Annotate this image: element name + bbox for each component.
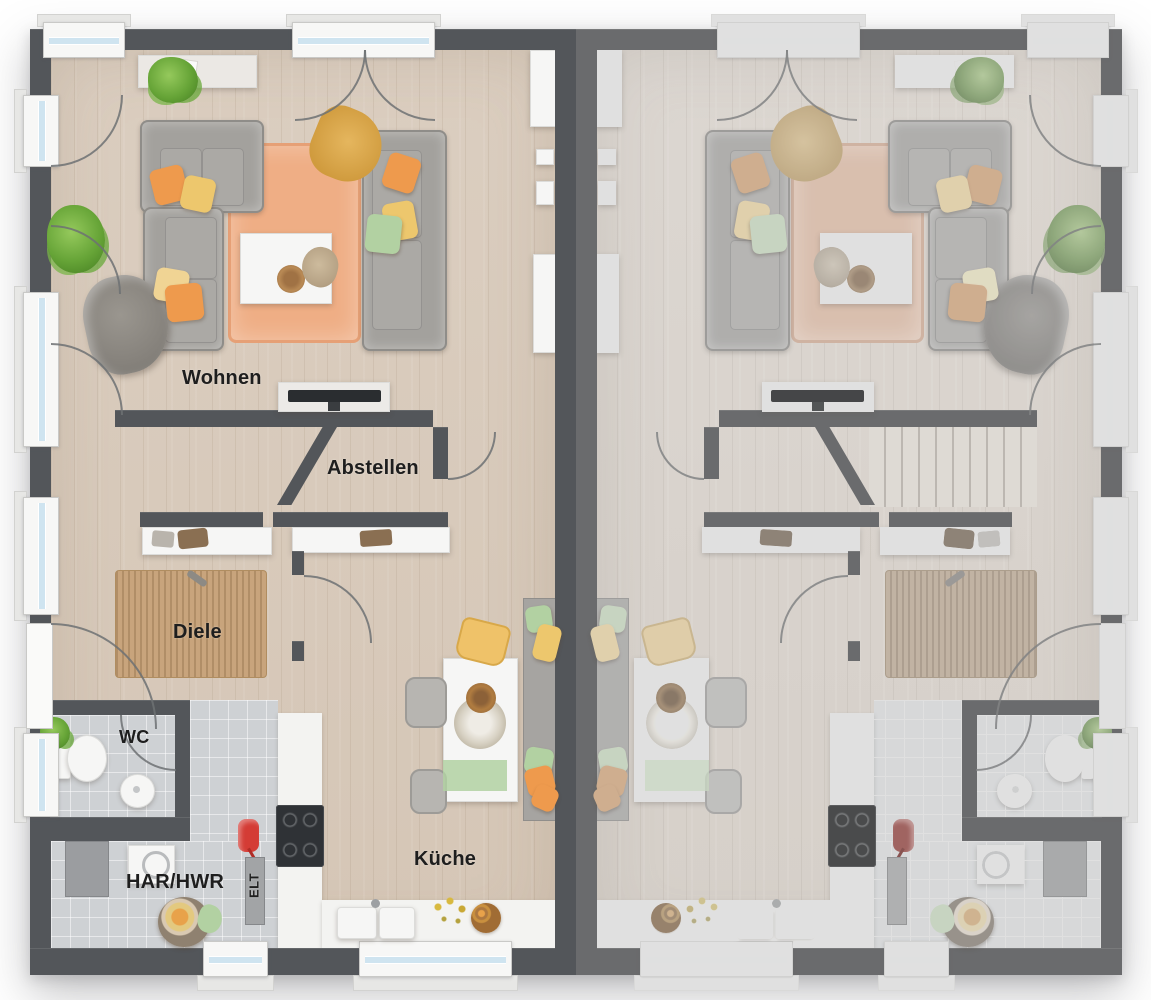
wc-utility-wall bbox=[50, 817, 190, 841]
entrance-door bbox=[26, 623, 53, 729]
pillow-yellow bbox=[935, 174, 973, 214]
kitchen-sink-basin bbox=[379, 907, 415, 939]
kitchen-window bbox=[640, 941, 793, 977]
wc-window bbox=[23, 733, 59, 817]
toilet-bowl bbox=[67, 735, 107, 782]
wall-decor-item bbox=[598, 149, 616, 165]
label-storage: Abstellen bbox=[327, 458, 419, 478]
dining-chair-gray bbox=[405, 677, 447, 728]
tv-screen bbox=[288, 390, 381, 402]
pillow-green bbox=[749, 213, 788, 254]
floor-plan-canvas: Wohnen Abstellen Diele WC HAR/HWR Küche … bbox=[0, 0, 1151, 1000]
corridor-floor bbox=[874, 700, 962, 841]
window-left-3 bbox=[23, 497, 59, 615]
pillow-orange bbox=[164, 282, 205, 323]
table-runner bbox=[645, 760, 709, 791]
living-partition-wall bbox=[719, 410, 1037, 427]
potted-plant bbox=[148, 57, 198, 103]
storage-right-wall bbox=[704, 427, 719, 479]
cooktop-burners bbox=[828, 805, 876, 867]
utility-cabinet bbox=[1043, 841, 1087, 897]
elt-panel bbox=[887, 857, 907, 925]
tray-decor bbox=[277, 265, 305, 293]
hall-kitchen-wall-b bbox=[848, 641, 860, 661]
dining-chair-gray bbox=[705, 677, 747, 728]
closet-tray-decor bbox=[759, 529, 792, 547]
window-sill bbox=[197, 975, 274, 991]
wall-shelf-upper bbox=[595, 50, 622, 127]
party-wall bbox=[555, 29, 576, 975]
bag-decor bbox=[977, 530, 1000, 548]
tv-stand bbox=[328, 402, 340, 411]
fruit-bowl bbox=[471, 903, 501, 933]
window-top-left bbox=[1027, 22, 1109, 58]
bowl-decor bbox=[656, 683, 686, 713]
wc-right-wall bbox=[962, 700, 977, 817]
dining-chair-gray bbox=[705, 769, 742, 814]
pillow-green bbox=[364, 213, 403, 254]
tv-stand bbox=[812, 402, 824, 411]
fruit-bowl bbox=[651, 903, 681, 933]
wall-decor-item bbox=[536, 149, 554, 165]
potted-plant bbox=[954, 57, 1004, 103]
toilet-bowl bbox=[1045, 735, 1085, 782]
handbag-decor bbox=[177, 527, 209, 549]
kitchen-sink-basin bbox=[775, 907, 815, 939]
living-partition-wall bbox=[115, 410, 433, 427]
label-electrical: ELT bbox=[248, 869, 261, 903]
storage-bottom-wall bbox=[273, 512, 448, 527]
closet-tray-decor bbox=[359, 529, 392, 547]
tv-screen bbox=[771, 390, 864, 402]
kitchen-sink-basin bbox=[737, 907, 773, 939]
storage-right-wall bbox=[433, 427, 448, 479]
dining-chair-gray bbox=[410, 769, 447, 814]
staircase bbox=[869, 427, 1037, 507]
faucet bbox=[772, 899, 781, 908]
wall-shelf-lower bbox=[595, 254, 619, 353]
window-sill bbox=[634, 975, 799, 991]
hall-kitchen-wall-b bbox=[292, 641, 304, 661]
flower-decor bbox=[678, 895, 724, 935]
kitchen-sink-basin bbox=[337, 907, 377, 939]
utility-window bbox=[203, 941, 268, 977]
party-wall bbox=[576, 29, 597, 975]
wc-utility-wall bbox=[962, 817, 1102, 841]
utility-cabinet bbox=[65, 841, 109, 897]
label-hallway: Diele bbox=[173, 622, 222, 642]
washer-door bbox=[982, 851, 1010, 879]
wardrobe-wall bbox=[140, 512, 263, 527]
window-top-left bbox=[43, 22, 125, 58]
label-wc: WC bbox=[119, 728, 149, 746]
corridor-floor bbox=[190, 700, 278, 841]
wc-window bbox=[1093, 733, 1129, 817]
pillow-orange bbox=[947, 282, 988, 323]
utility-window bbox=[884, 941, 949, 977]
label-utility: HAR/HWR bbox=[126, 872, 224, 892]
hall-kitchen-wall-a bbox=[848, 551, 860, 575]
wc-right-wall bbox=[175, 700, 190, 817]
kitchen-window bbox=[359, 941, 512, 977]
wall-shelf-upper bbox=[530, 50, 557, 127]
wardrobe-wall bbox=[889, 512, 1012, 527]
bowl-decor bbox=[466, 683, 496, 713]
wall-decor-item bbox=[598, 181, 616, 205]
entrance-door bbox=[1099, 623, 1126, 729]
unit-right-mirrored bbox=[576, 29, 1122, 975]
cooktop-burners bbox=[276, 805, 324, 867]
storage-bottom-wall bbox=[704, 512, 879, 527]
building: Wohnen Abstellen Diele WC HAR/HWR Küche … bbox=[30, 29, 1122, 975]
table-runner bbox=[443, 760, 507, 791]
window-sill bbox=[353, 975, 518, 991]
hallway-rug bbox=[885, 570, 1037, 678]
flower-decor bbox=[428, 895, 474, 935]
label-kitchen: Küche bbox=[414, 849, 476, 869]
wall-decor-item bbox=[536, 181, 554, 205]
window-left-3 bbox=[1093, 497, 1129, 615]
bag-decor bbox=[151, 530, 174, 548]
tray-decor bbox=[847, 265, 875, 293]
fire-extinguisher bbox=[893, 819, 914, 852]
unit-left: Wohnen Abstellen Diele WC HAR/HWR Küche … bbox=[30, 29, 576, 975]
hall-kitchen-wall-a bbox=[292, 551, 304, 575]
wc-sink-drain bbox=[1012, 786, 1019, 793]
faucet bbox=[371, 899, 380, 908]
wc-sink-drain bbox=[133, 786, 140, 793]
handbag-decor bbox=[943, 527, 975, 549]
label-living: Wohnen bbox=[182, 368, 262, 388]
wall-shelf-lower bbox=[533, 254, 557, 353]
window-sill bbox=[878, 975, 955, 991]
